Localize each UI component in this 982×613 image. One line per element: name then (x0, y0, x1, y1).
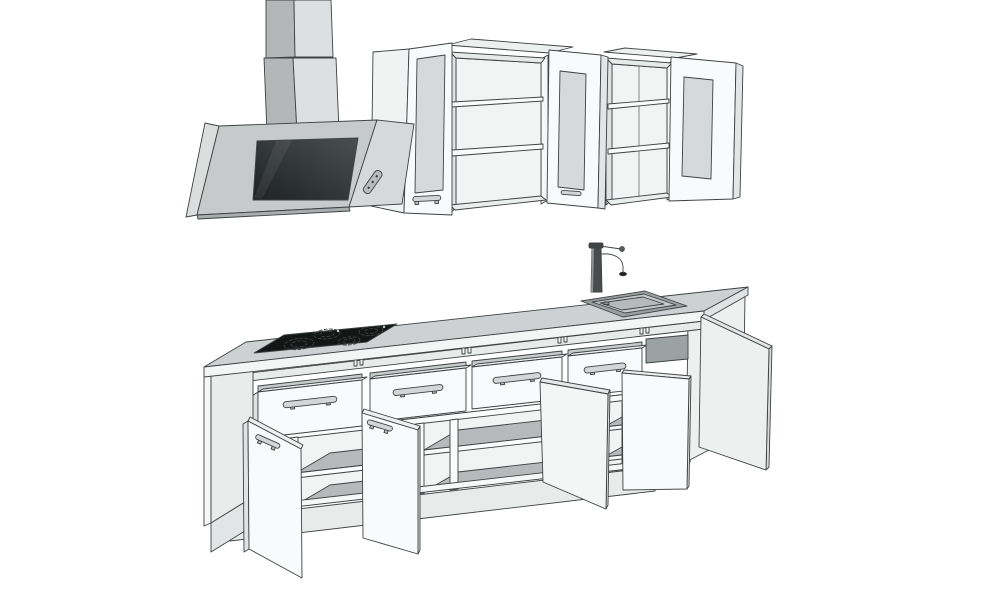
door-handle (561, 190, 581, 195)
base-door-1 (243, 417, 303, 578)
door-frosted-glass (415, 55, 445, 193)
faucet-spout-opening (620, 272, 627, 276)
faucet (589, 243, 627, 292)
door-frosted-glass (558, 71, 586, 190)
under-sink-recess (646, 335, 688, 363)
cabinet-top-face (604, 48, 697, 58)
end-panel-front-edge (204, 374, 211, 526)
wall-door-right-open (669, 57, 743, 201)
base-door-4 (622, 370, 691, 490)
stile (450, 419, 458, 490)
kitchen-3d-rendering (0, 0, 982, 613)
door-face (622, 373, 689, 490)
chimney-upper-right-face (294, 0, 333, 57)
faucet-lever-knob (620, 247, 625, 252)
door-face (362, 413, 418, 554)
faucet-spout (602, 254, 623, 272)
drawer-2 (370, 362, 471, 422)
sink-drain (604, 302, 609, 305)
wall-cabinet-right (547, 48, 743, 209)
wall-door-middle-open (547, 50, 608, 209)
faucet-cap (589, 243, 603, 248)
base-door-2 (362, 409, 420, 554)
extractor-hood (186, 120, 414, 219)
cabinet-interior-back (456, 58, 541, 208)
door-frosted-glass (682, 77, 713, 179)
base-door-5 (699, 314, 772, 470)
cabinet-interior-back (612, 64, 667, 200)
chimney-duct (264, 0, 339, 133)
chimney-lower-left-face (264, 58, 297, 133)
kitchen-scene-canvas (0, 0, 982, 613)
chimney-upper-left-face (266, 0, 295, 58)
chimney-lower-right-face (293, 58, 339, 132)
